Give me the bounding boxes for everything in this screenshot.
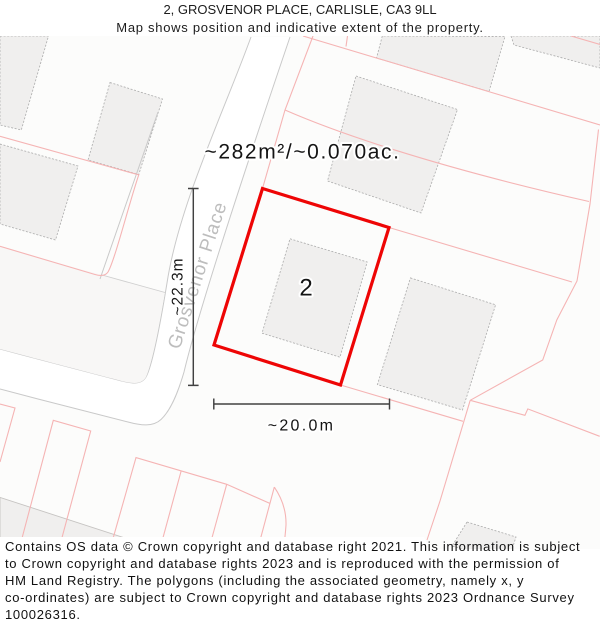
svg-text:~282m²/~0.070ac.: ~282m²/~0.070ac. — [205, 141, 401, 164]
svg-text:2: 2 — [299, 275, 312, 302]
svg-text:~20.0m: ~20.0m — [268, 418, 336, 435]
svg-text:~22.3m: ~22.3m — [170, 257, 187, 315]
